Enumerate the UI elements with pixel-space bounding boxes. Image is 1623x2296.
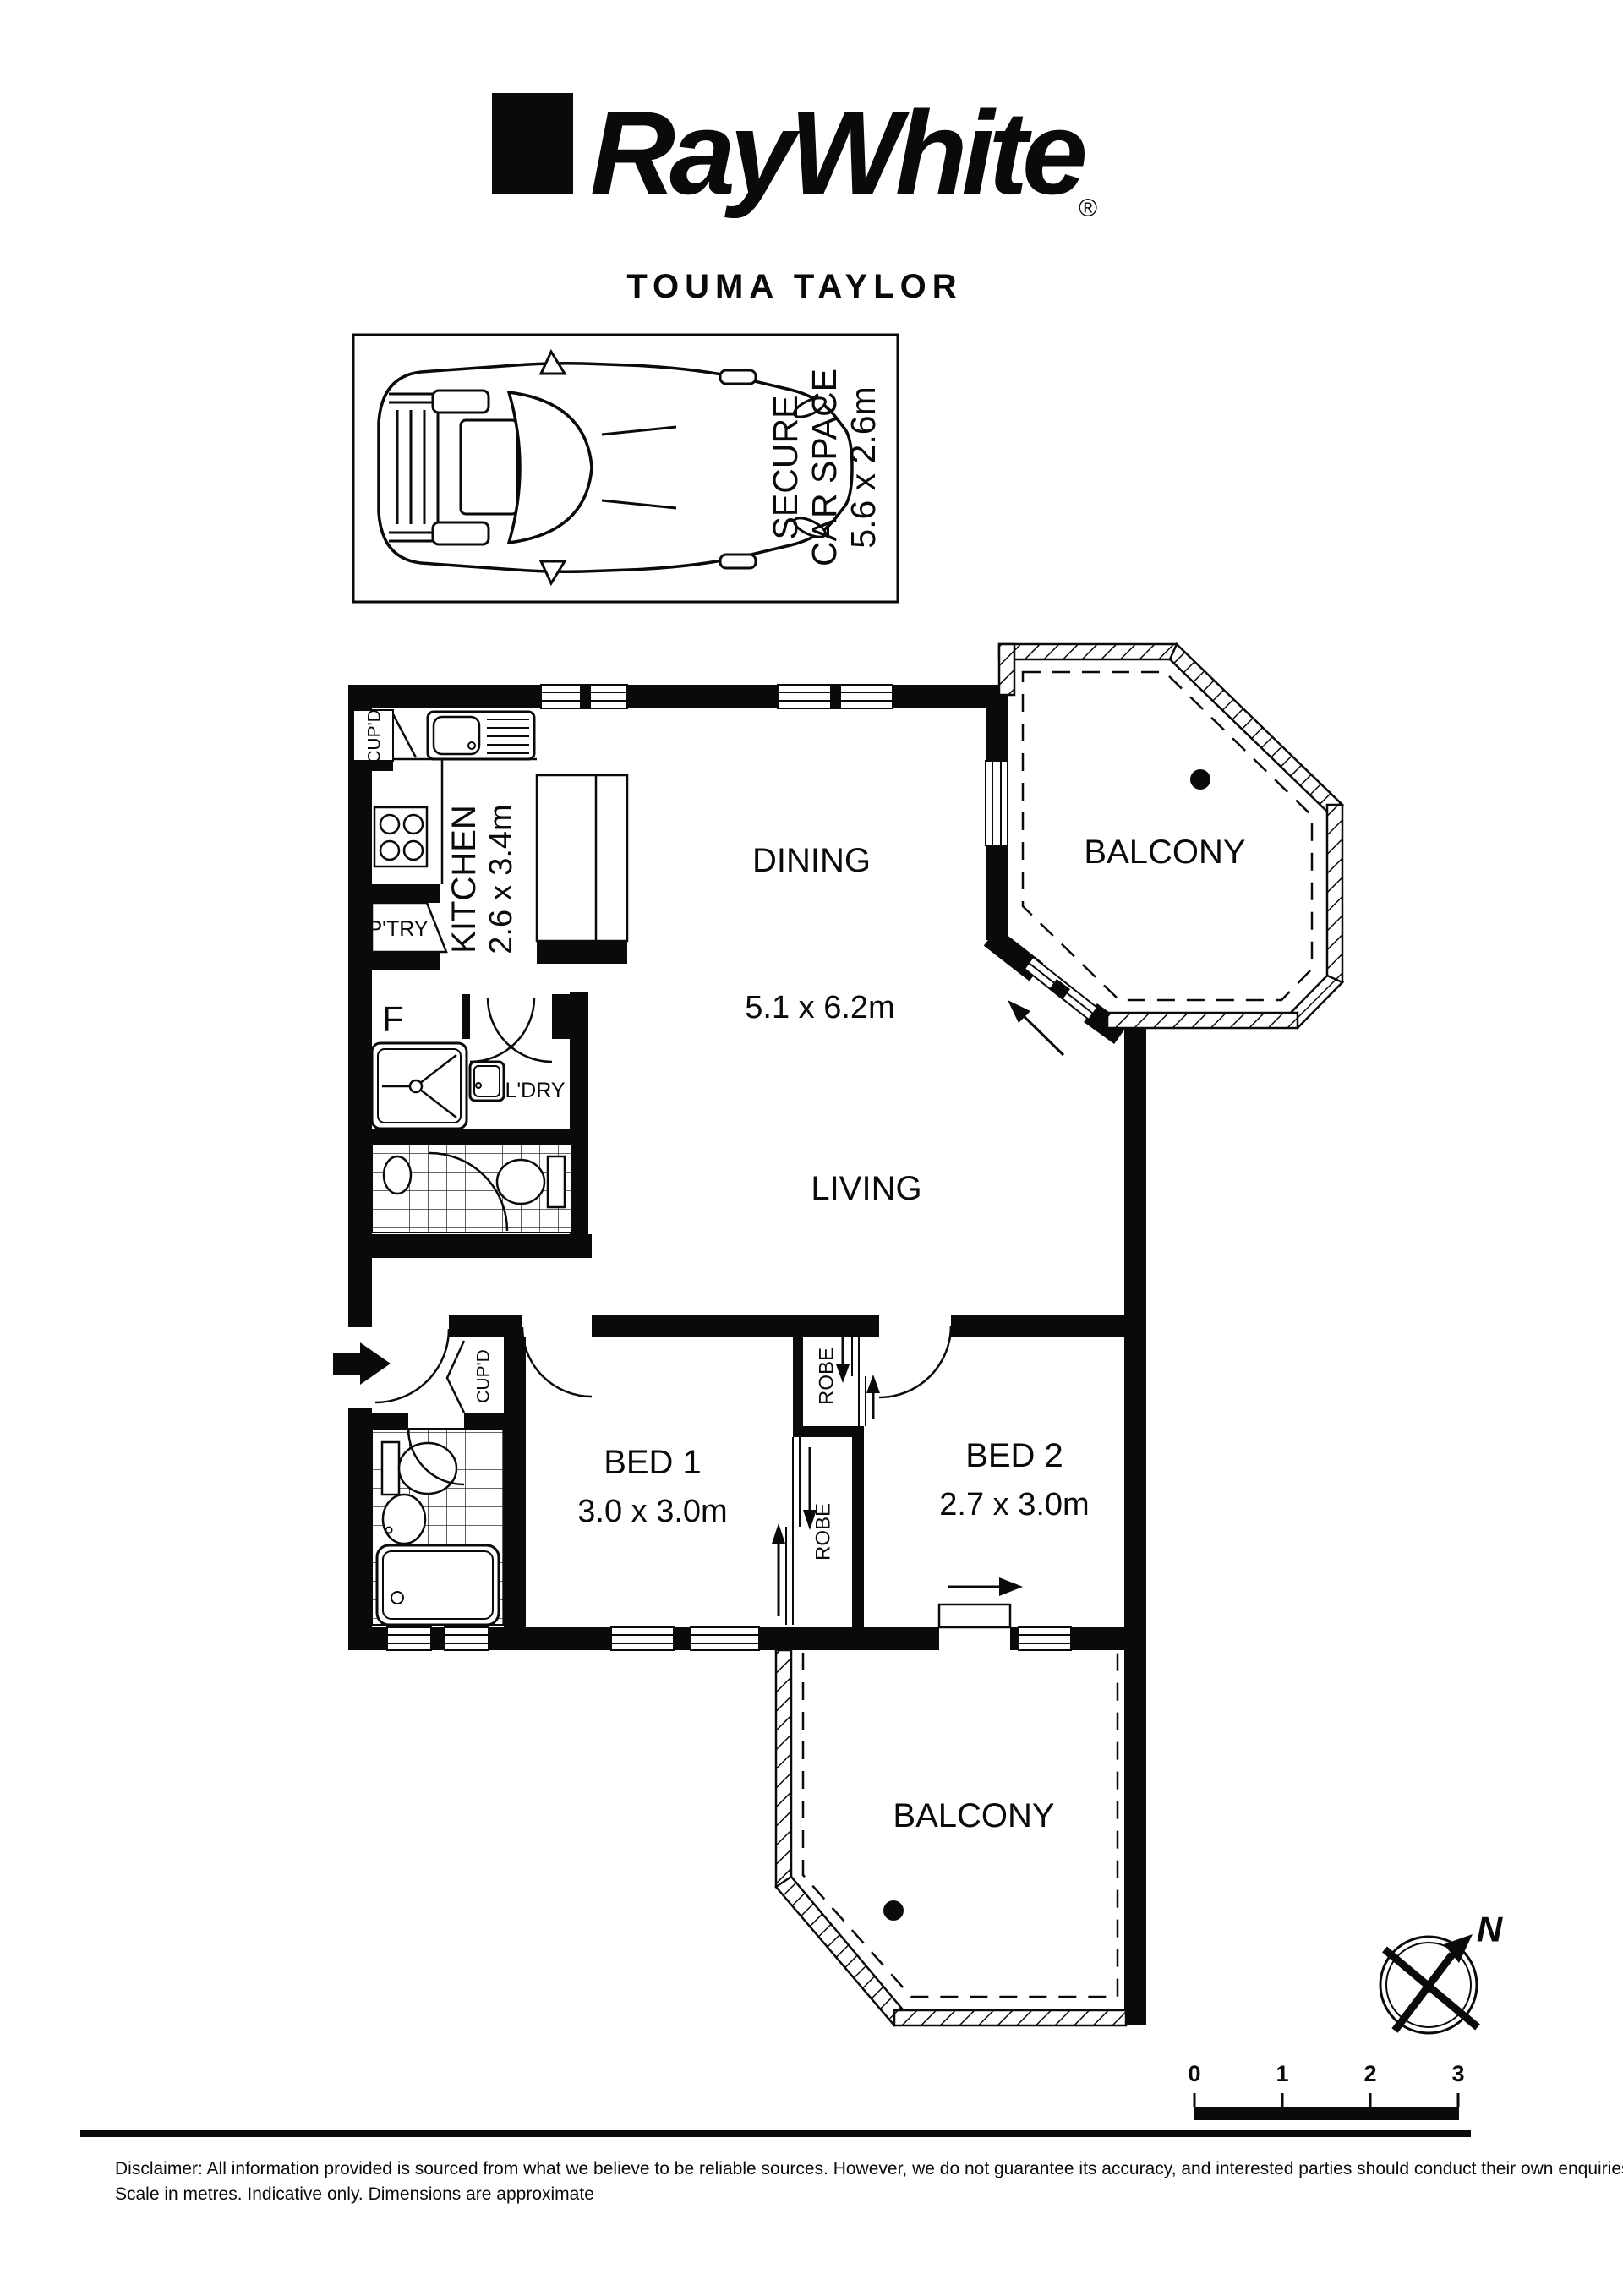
brand-name: RayWhite	[590, 86, 1085, 219]
scale-label-1: 1	[1276, 2061, 1288, 2086]
balcony-bottom-label: BALCONY	[893, 1797, 1054, 1834]
balcony-top-downpipe-dot	[1190, 769, 1210, 790]
kitchen-dim-label: 2.6 x 3.4m	[484, 804, 519, 954]
robe1-label: ROBE	[816, 1348, 839, 1405]
divider-rule	[80, 2130, 1471, 2137]
toilet1-icon	[497, 1156, 565, 1207]
basin1-icon	[384, 1156, 411, 1194]
living-dim-label: 5.1 x 6.2m	[745, 990, 894, 1025]
toilet2-icon	[382, 1442, 456, 1495]
scale-label-0: 0	[1188, 2061, 1200, 2086]
sink-icon	[428, 712, 534, 759]
scale-label-3: 3	[1451, 2061, 1464, 2086]
agency-name: TOUMA TAYLOR	[626, 268, 962, 305]
scale-bar: 0 1 2 3	[1188, 2061, 1464, 2120]
header-logo: RayWhite ® TOUMA TAYLOR	[492, 86, 1097, 305]
entry-cupboard-bifold	[447, 1341, 464, 1413]
laundry-door-right-arc	[488, 998, 552, 1062]
compass-icon: N	[1380, 1910, 1504, 2034]
bed1-dim-label: 3.0 x 3.0m	[577, 1494, 727, 1529]
basin2-icon	[383, 1495, 425, 1544]
registered-mark: ®	[1079, 194, 1097, 222]
robe2-label: ROBE	[812, 1503, 835, 1561]
scale-label-2: 2	[1363, 2061, 1376, 2086]
brand-square-icon	[492, 93, 573, 194]
floorplan-page: RayWhite ® TOUMA TAYLOR	[0, 0, 1623, 2296]
bed1-door-arc	[522, 1327, 592, 1397]
pantry-label: P'TRY	[369, 917, 429, 941]
car-space-line2: CAR SPACE	[805, 369, 844, 566]
car-space-box: SECURE CAR SPACE 5.6 x 2.6m	[353, 335, 898, 602]
balcony-top-label: BALCONY	[1084, 834, 1245, 871]
floor-plan: RayWhite ® TOUMA TAYLOR	[0, 0, 1623, 2296]
kitchen-label: KITCHEN	[445, 805, 483, 954]
scale-bar-rect	[1194, 2107, 1459, 2120]
bed2-door-arc	[879, 1326, 951, 1397]
bed2-dim-label: 2.7 x 3.0m	[939, 1487, 1089, 1522]
laundry-label: L'DRY	[505, 1079, 565, 1102]
car-space-label: SECURE CAR SPACE 5.6 x 2.6m	[766, 369, 883, 566]
room-labels: DINING 5.1 x 6.2m LIVING BALCONY BALCONY…	[365, 709, 1246, 1834]
kitchen-cupboard	[353, 710, 416, 761]
living-label: LIVING	[811, 1170, 921, 1207]
dining-label: DINING	[752, 842, 871, 879]
car-space-dim: 5.6 x 2.6m	[844, 386, 883, 548]
disclaimer: Disclaimer: All information provided is …	[115, 2159, 1623, 2204]
fridge-label: F	[382, 999, 404, 1039]
entry-arrow-icon	[333, 1342, 391, 1385]
bathtub-icon	[377, 1545, 499, 1625]
shower-icon	[372, 1043, 467, 1129]
kitchen-cupboard-label: CUP'D	[365, 709, 385, 763]
bed2-label: BED 2	[965, 1437, 1063, 1474]
car-space-line1: SECURE	[766, 396, 805, 540]
laundry-tub-icon	[470, 1062, 504, 1101]
bed1-label: BED 1	[604, 1444, 702, 1481]
bed2-balcony-slider	[939, 1577, 1023, 1627]
entry-cupboard-label: CUP'D	[474, 1349, 494, 1403]
north-label: N	[1477, 1910, 1504, 1949]
balcony-bottom-downpipe-dot	[883, 1900, 904, 1921]
laundry-door-left-arc	[470, 998, 534, 1062]
cooktop-icon	[374, 807, 427, 866]
disclaimer-line-1: Disclaimer: All information provided is …	[115, 2159, 1623, 2178]
disclaimer-line-2: Scale in metres. Indicative only. Dimens…	[115, 2184, 594, 2204]
